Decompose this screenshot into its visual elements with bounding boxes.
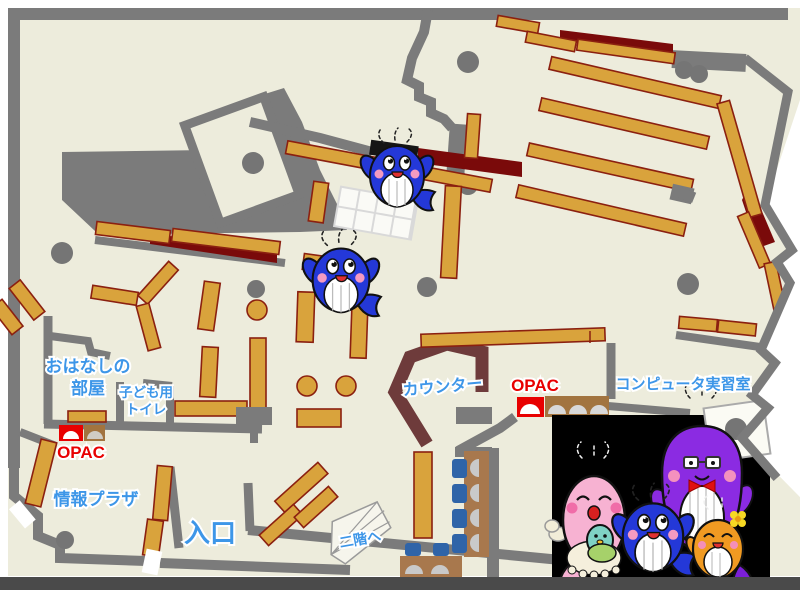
label-storytelling-room: おはなしの: [46, 357, 131, 376]
pillar: [690, 65, 708, 83]
label-entrance: 入口: [184, 518, 236, 548]
opac-terminal-right: [517, 396, 609, 417]
bookshelf: [200, 347, 219, 398]
library-floor-map: おはなしの 部屋 子ども用 トイレ OPAC 情報プラザ 入口 カウンター OP…: [0, 0, 800, 590]
floor-map-canvas: おはなしの 部屋 子ども用 トイレ OPAC 情報プラザ 入口 カウンター OP…: [0, 0, 800, 590]
counter-desk: [456, 407, 492, 424]
round-table: [297, 376, 317, 396]
pillar: [247, 280, 265, 298]
wall-bottom: [160, 563, 350, 570]
label-computer-room: コンピュータ実習室: [615, 375, 750, 393]
pillar: [417, 277, 437, 297]
label-storytelling-room-2: 部屋: [71, 378, 105, 398]
round-table: [247, 300, 267, 320]
label-kids-toilet-2: トイレ: [126, 402, 167, 417]
label-opac-right: OPAC: [511, 376, 559, 395]
pillar: [457, 51, 479, 73]
opac-terminal-left: [59, 425, 105, 441]
label-opac-left: OPAC: [57, 443, 105, 462]
wall-entrance: [248, 483, 250, 531]
wall-left: [8, 8, 20, 468]
label-kids-toilet: 子ども用: [119, 385, 173, 400]
pillar: [51, 242, 73, 264]
bottom-band: [0, 577, 800, 590]
round-table: [336, 376, 356, 396]
label-info-plaza: 情報プラザ: [54, 489, 139, 509]
wall-top: [8, 8, 788, 20]
bookshelf: [68, 411, 106, 422]
